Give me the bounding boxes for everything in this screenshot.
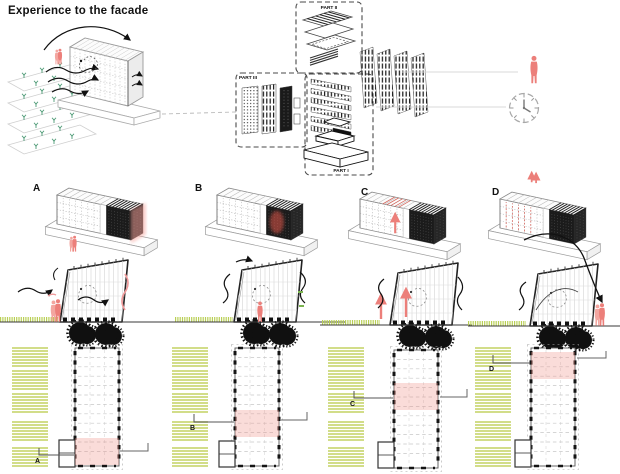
variant-a: A xyxy=(0,183,185,470)
part-ii-label: PART II xyxy=(321,5,338,11)
warm-air-tick xyxy=(48,294,56,296)
leader-line xyxy=(194,414,234,422)
hero-to-exploded-connector xyxy=(162,112,236,114)
person-icon xyxy=(55,49,62,65)
variant-d-section xyxy=(530,262,598,351)
wind-squiggle xyxy=(519,282,526,310)
dimension-bracket xyxy=(577,351,606,358)
variant-c-section xyxy=(390,261,458,350)
variant-b: B xyxy=(172,183,345,470)
plan-highlight-zone xyxy=(235,410,279,437)
variant-d-label: D xyxy=(492,187,499,198)
variant-c-plan: C xyxy=(350,347,467,472)
part-iii-panels xyxy=(242,84,300,134)
variant-a-section xyxy=(60,258,128,347)
dimension-bracket xyxy=(440,389,467,397)
facade-diagram-page: Experience to the facade xyxy=(0,0,620,474)
variant-a-fields xyxy=(12,348,48,466)
variant-a-label: A xyxy=(33,183,40,194)
plan-label-a: A xyxy=(35,458,40,465)
exploded-axonometric: PART II PART III PART I xyxy=(236,2,428,175)
variant-b-axon xyxy=(206,188,318,256)
plan-label-d: D xyxy=(489,366,494,373)
dimension-bracket xyxy=(281,412,307,420)
variant-c: C xyxy=(320,187,472,472)
variant-d: D xyxy=(468,173,620,470)
roof-layers xyxy=(303,11,355,65)
plan-highlight-zone xyxy=(75,438,119,465)
variant-b-label: B xyxy=(195,183,202,194)
plan-highlight-zone xyxy=(531,352,575,379)
plan-annex xyxy=(515,440,531,467)
interior-highlight xyxy=(270,211,284,234)
diagram-scene: PART II PART III PART I xyxy=(0,0,620,474)
person-icon xyxy=(530,56,537,83)
variant-a-plan: A xyxy=(35,345,148,470)
part-iii-label: PART III xyxy=(239,75,258,81)
variant-c-fields xyxy=(328,348,364,466)
clock-icon xyxy=(510,94,539,123)
variant-b-axon-overlay xyxy=(270,211,284,234)
plan-label-b: B xyxy=(190,425,195,432)
stack-air-arrows xyxy=(532,173,536,184)
swirl-origin-dot xyxy=(80,60,82,62)
variant-c-axon xyxy=(349,192,461,260)
variant-b-section xyxy=(234,258,302,347)
hero-experience-diagram xyxy=(8,27,236,154)
variant-d-axon xyxy=(489,192,601,260)
part-i-label: PART I xyxy=(333,168,349,174)
variant-b-fields xyxy=(172,348,208,466)
base-slabs xyxy=(304,118,368,167)
plan-label-c: C xyxy=(350,401,355,408)
plan-annex xyxy=(59,440,75,467)
dimension-bracket xyxy=(120,443,148,451)
person-icon xyxy=(595,303,605,326)
person-icon xyxy=(51,299,61,322)
plan-highlight-zone xyxy=(394,383,438,410)
